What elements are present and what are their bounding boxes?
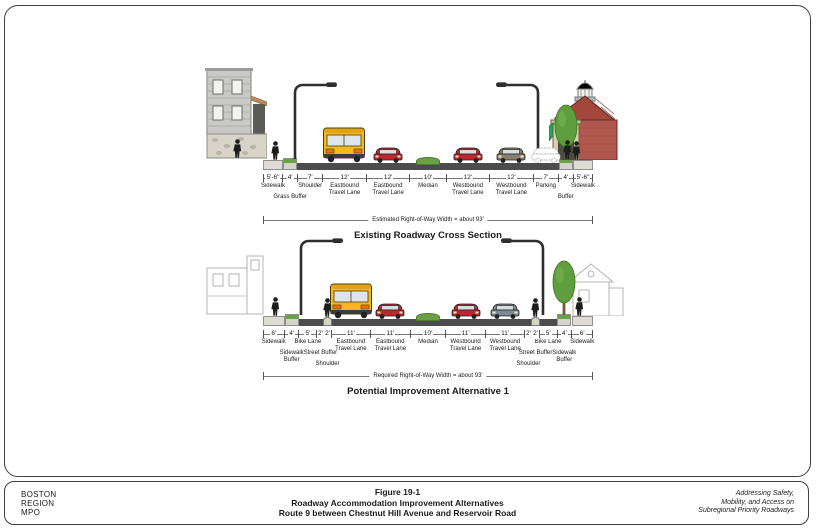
segment-label: Eastbound Travel Lane: [327, 183, 363, 196]
segment-width: 4': [287, 173, 294, 183]
segment-width: 11': [461, 329, 471, 339]
segment-width: 5': [545, 329, 552, 339]
alternative-dimensions: 6' Sidewalk 4' Sidewalk Buffer 5' Bike L…: [263, 329, 593, 382]
dimension-segment: 11' Eastbound Travel Lane: [371, 329, 410, 371]
segment-width: 12': [463, 173, 473, 183]
grass-buffer-left: [283, 158, 298, 170]
footer-bar: BOSTON REGION MPO Figure 19-1 Roadway Ac…: [4, 481, 809, 525]
mpo-name-line: BOSTON: [21, 490, 191, 499]
study-tagline: Addressing Safety, Mobility, and Access …: [604, 490, 808, 516]
segment-width: 7': [307, 173, 314, 183]
figure-title-block: Figure 19-1 Roadway Accommodation Improv…: [191, 487, 604, 519]
segment-label: Eastbound Travel Lane: [370, 183, 406, 196]
sidewalk-buffer-left: [285, 314, 299, 326]
pedestrian: [233, 139, 242, 158]
pedestrian: [271, 297, 280, 316]
dimension-segment: 10' Median: [410, 173, 446, 215]
car-red-westbound: [451, 302, 481, 319]
sidewalk-right: [572, 316, 594, 326]
segment-label: Shoulder: [316, 361, 340, 368]
segment-label: Sidewalk: [261, 183, 285, 190]
figure-canvas: 5'-6" Sidewalk 4' Grass Buffer 7' Should…: [4, 5, 811, 477]
dimension-segment: 11' Westbound Travel Lane: [446, 329, 485, 371]
tagline-line: Subregional Priority Roadways: [604, 507, 794, 516]
dimension-segment: 4' Sidewalk Buffer: [285, 329, 299, 371]
segment-width: 4': [288, 329, 295, 339]
car-red-eastbound: [373, 146, 403, 163]
segment-label: Bike Lane: [294, 339, 321, 346]
pedestrian: [271, 141, 280, 160]
dimension-segment: 10' Median: [410, 329, 446, 371]
tagline-line: Mobility, and Access on: [604, 499, 794, 508]
segment-width: 5'-6": [265, 173, 280, 183]
figure-page: 5'-6" Sidewalk 4' Grass Buffer 7' Should…: [0, 0, 816, 528]
dimension-segment: 12' Westbound Travel Lane: [446, 173, 490, 215]
car-red-westbound: [453, 146, 483, 163]
segment-width: 11': [500, 329, 510, 339]
dimension-segment: 12' Westbound Travel Lane: [490, 173, 534, 215]
segment-width: 11': [346, 329, 356, 339]
dimension-segment: 7' Parking: [533, 173, 558, 215]
school-bus: [322, 125, 366, 163]
row-tick-right: [592, 216, 593, 224]
dimension-segment: 4' Buffer: [559, 173, 574, 215]
dimension-segment: 12' Eastbound Travel Lane: [366, 173, 410, 215]
dimension-segment: 5'-6" Sidewalk: [573, 173, 593, 215]
car-red-eastbound: [375, 302, 405, 319]
dimension-row: 6' Sidewalk 4' Sidewalk Buffer 5' Bike L…: [263, 329, 593, 371]
segment-label: Shoulder: [516, 361, 540, 368]
pedestrian: [572, 141, 581, 160]
pedestrian: [575, 297, 584, 316]
mpo-name-line: REGION: [21, 499, 191, 508]
existing-scene: [263, 66, 593, 170]
segment-label: Bike Lane: [535, 339, 562, 346]
tagline-line: Addressing Safety,: [604, 490, 794, 499]
segment-width: 5': [304, 329, 311, 339]
car-brown-westbound: [496, 146, 526, 163]
dimension-row: 5'-6" Sidewalk 4' Grass Buffer 7' Should…: [263, 173, 593, 215]
segment-width: 5'-6": [576, 173, 591, 183]
pedestrian: [531, 298, 540, 317]
figure-subtitle: Route 9 between Chestnut Hill Avenue and…: [191, 508, 604, 519]
segment-width: 6': [270, 329, 277, 339]
segment-width: 2': [532, 329, 539, 339]
segment-width: 2': [324, 329, 331, 339]
building-left-outline: [205, 254, 267, 316]
school-bus: [329, 281, 373, 319]
segment-width: 2': [317, 329, 324, 339]
segment-label: Sidewalk: [570, 339, 594, 346]
segment-width: 12': [383, 173, 393, 183]
row-tick-left: [263, 216, 264, 224]
segment-label: Sidewalk: [262, 339, 286, 346]
segment-width: 10': [423, 329, 433, 339]
segment-label: Median: [418, 183, 438, 190]
car-gray-westbound: [490, 302, 520, 319]
segment-label: Median: [418, 339, 438, 346]
segment-label: Shoulder: [298, 183, 322, 190]
median-island: [416, 157, 440, 165]
segment-width: 11': [385, 329, 395, 339]
mpo-name-line: MPO: [21, 508, 191, 517]
segment-width: 10': [423, 173, 433, 183]
segment-label: Eastbound Travel Lane: [372, 339, 408, 352]
segment-width: 4': [561, 329, 568, 339]
existing-dimensions: 5'-6" Sidewalk 4' Grass Buffer 7' Should…: [263, 173, 593, 226]
alternative-caption: Potential Improvement Alternative 1: [263, 386, 593, 397]
alternative-scene: [263, 256, 593, 326]
segment-label: Grass Buffer: [273, 194, 307, 201]
segment-label: Eastbound Travel Lane: [333, 339, 369, 352]
segment-label: Westbound Travel Lane: [450, 183, 486, 196]
right-of-way-line: Required Right-of-Way Width = about 93': [263, 371, 593, 382]
row-tick-right: [592, 372, 593, 380]
street-tree: [551, 259, 577, 315]
figure-number: Figure 19-1: [191, 487, 604, 498]
segment-label: Parking: [536, 183, 556, 190]
segment-width: 6': [579, 329, 586, 339]
dimension-segment: 4' Grass Buffer: [283, 173, 298, 215]
segment-label: Buffer: [558, 194, 574, 201]
pedestrian: [323, 298, 332, 317]
segment-width: 12': [339, 173, 349, 183]
median-island: [416, 313, 440, 321]
segment-label: Westbound Travel Lane: [487, 339, 523, 352]
segment-label: Sidewalk Buffer: [546, 350, 582, 363]
street-buffer-island-right: [531, 317, 540, 326]
mpo-name: BOSTON REGION MPO: [5, 490, 191, 517]
dimension-segment: 4' Sidewalk Buffer: [557, 329, 571, 371]
sidewalk-left: [263, 160, 283, 170]
row-tick-left: [263, 372, 264, 380]
segment-width: 12': [506, 173, 516, 183]
segment-width: 2': [525, 329, 532, 339]
segment-label: Westbound Travel Lane: [493, 183, 529, 196]
segment-width: 4': [562, 173, 569, 183]
sidewalk-left: [263, 316, 285, 326]
sidewalk-right: [573, 160, 593, 170]
pedestrian: [563, 140, 572, 159]
dimension-segment: 12' Eastbound Travel Lane: [323, 173, 367, 215]
right-of-way-line: Estimated Right-of-Way Width = about 93': [263, 215, 593, 226]
segment-label: Westbound Travel Lane: [448, 339, 484, 352]
figure-title: Roadway Accommodation Improvement Altern…: [191, 498, 604, 509]
right-of-way-label: Required Right-of-Way Width = about 93': [369, 371, 486, 382]
right-of-way-label: Estimated Right-of-Way Width = about 93': [368, 215, 487, 226]
segment-label: Sidewalk: [571, 183, 595, 190]
segment-width: 7': [542, 173, 549, 183]
